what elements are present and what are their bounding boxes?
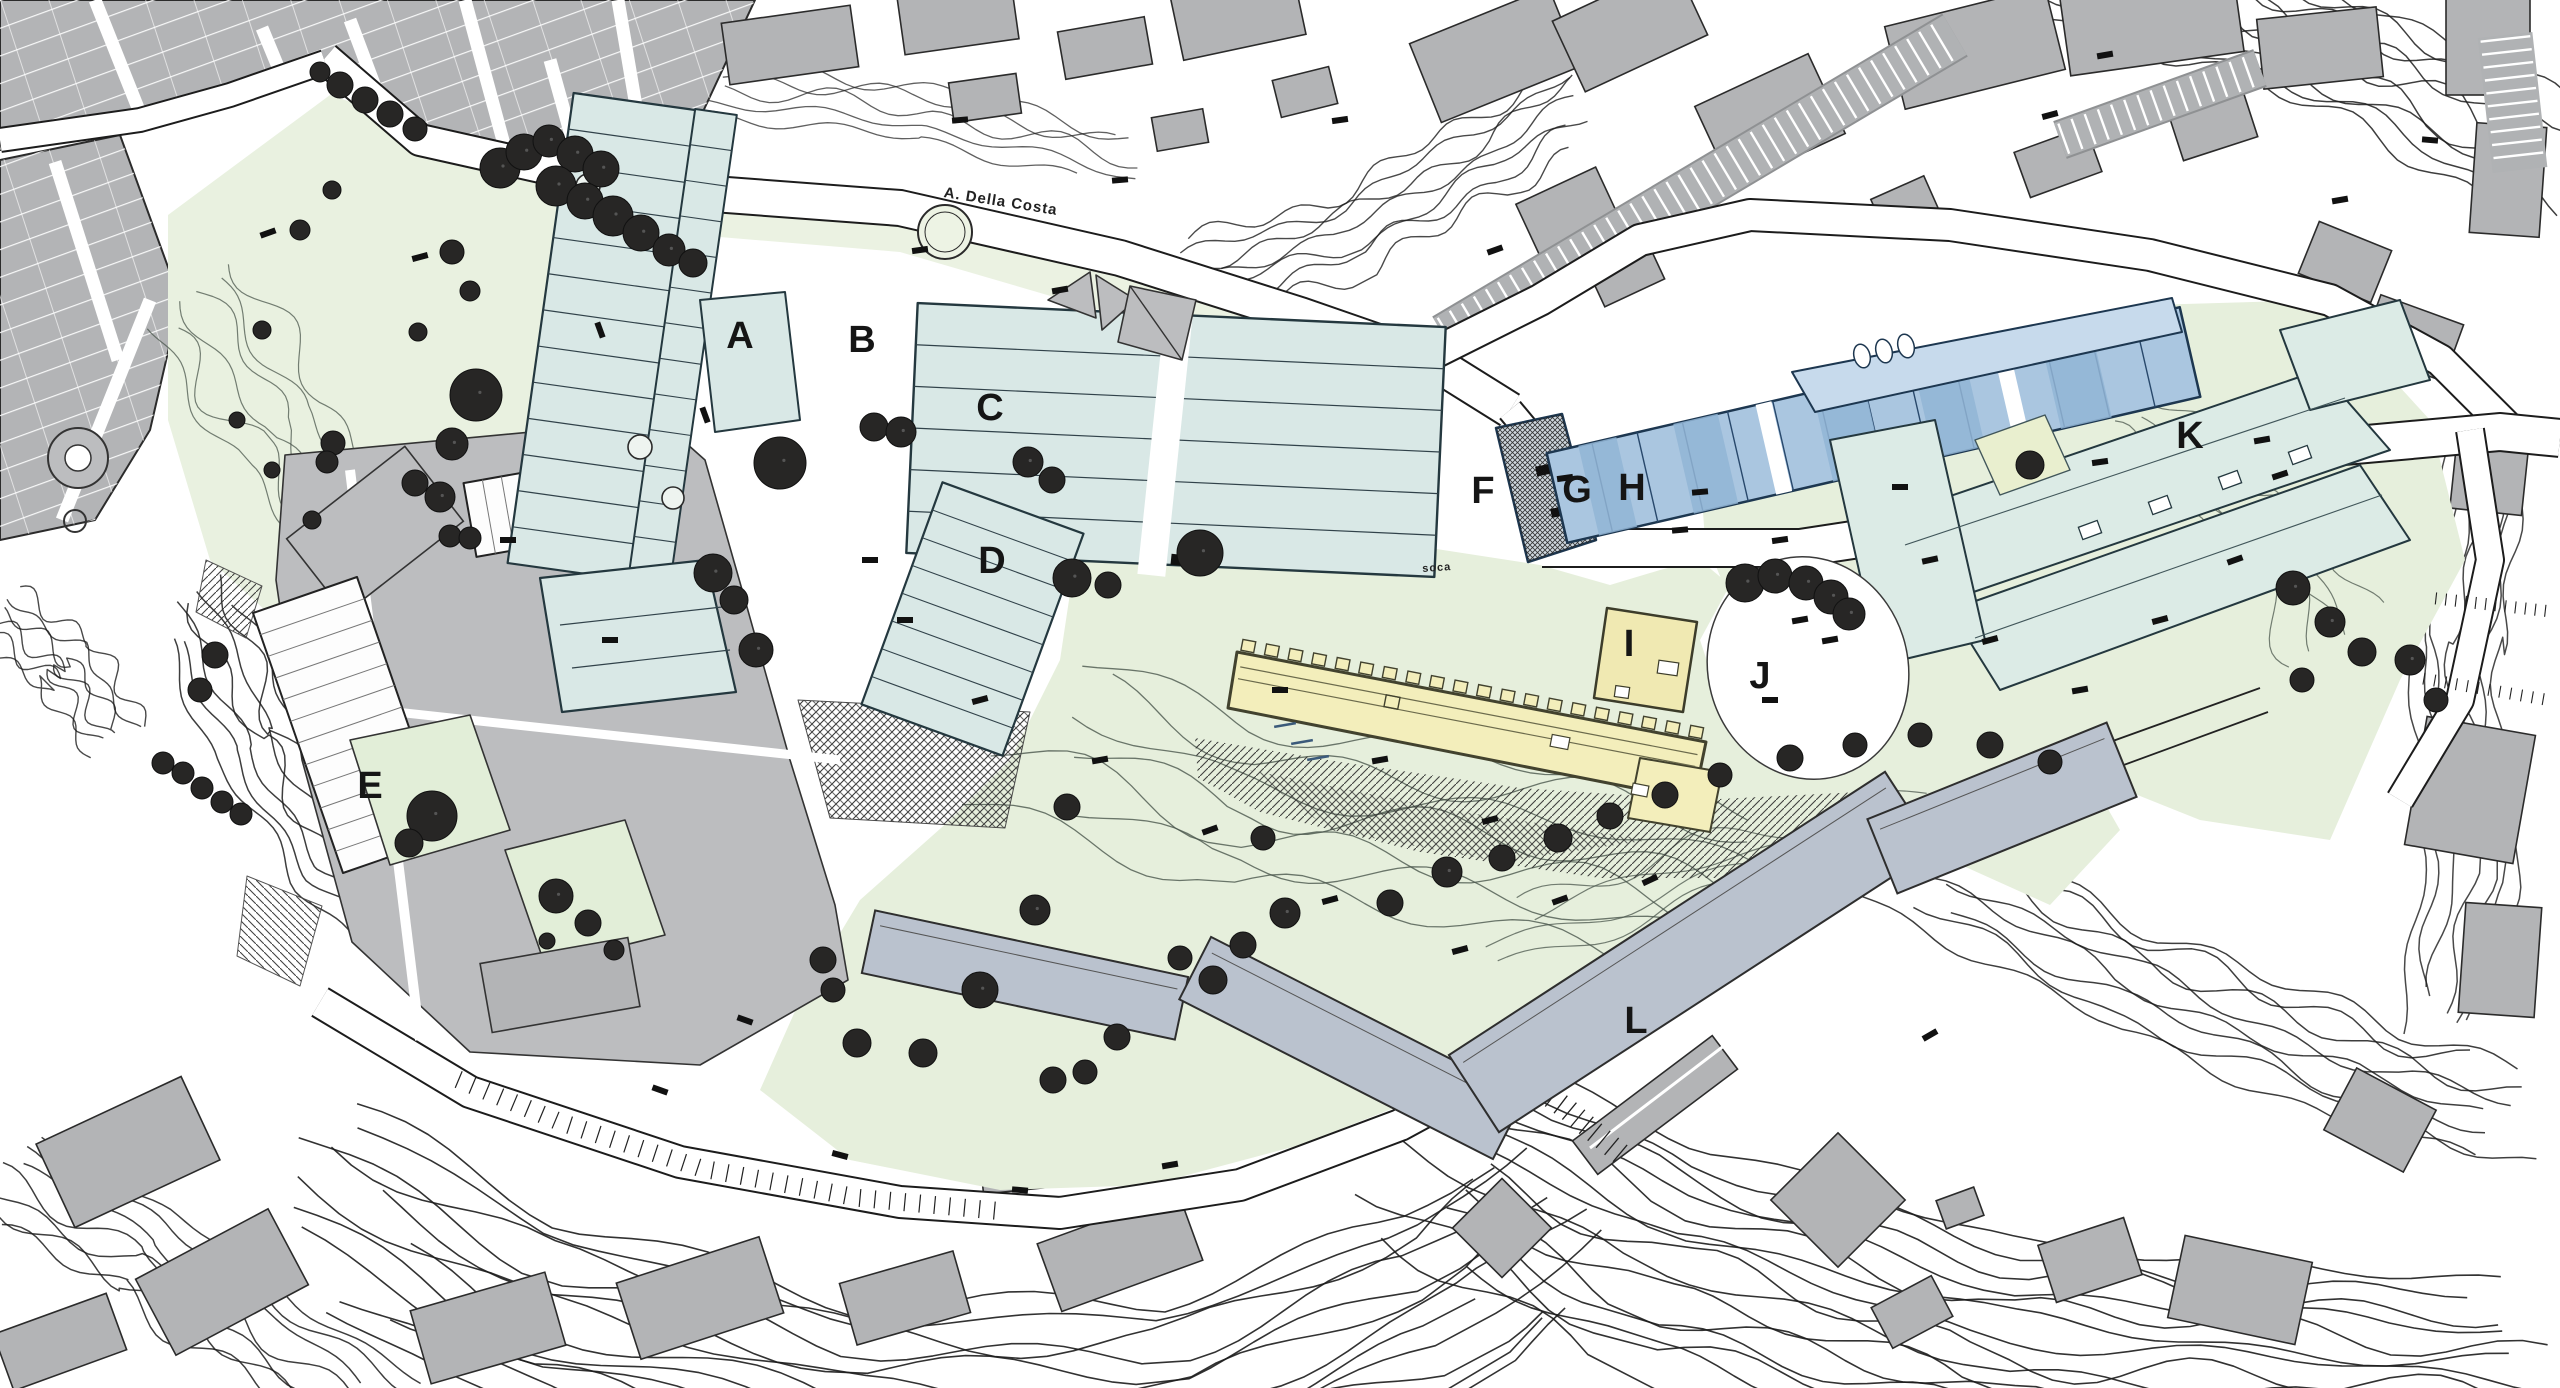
tree-icon xyxy=(886,417,916,447)
tree-icon xyxy=(2016,451,2044,479)
tree-icon xyxy=(2315,607,2345,637)
tree-icon xyxy=(1652,782,1678,808)
tree-icon xyxy=(1095,572,1121,598)
tree-icon xyxy=(459,527,481,549)
site-mark xyxy=(862,557,878,563)
tree-icon xyxy=(172,762,194,784)
tree-icon xyxy=(1708,763,1732,787)
site-mark xyxy=(2332,196,2349,205)
building-label-k: K xyxy=(2176,415,2204,457)
tree-icon xyxy=(810,947,836,973)
street-label-1: soca xyxy=(1422,561,1452,575)
tree-icon xyxy=(230,803,252,825)
tree-icon xyxy=(202,642,228,668)
building-label-f: F xyxy=(1471,470,1494,512)
tree-icon xyxy=(323,181,341,199)
tree-icon xyxy=(1040,1067,1066,1093)
tree-icon xyxy=(1251,826,1275,850)
tree-icon xyxy=(1833,598,1865,630)
tree-icon xyxy=(1270,898,1300,928)
building-label-c: C xyxy=(976,387,1003,429)
tree-icon xyxy=(2395,645,2425,675)
building-label-i: I xyxy=(1624,623,1635,665)
tree-icon xyxy=(2424,688,2448,712)
site-mark xyxy=(651,1084,668,1095)
tree-icon xyxy=(2290,668,2314,692)
tree-icon xyxy=(720,586,748,614)
tree-icon xyxy=(575,910,601,936)
site-mark xyxy=(699,406,710,423)
tree-icon xyxy=(316,451,338,473)
building-label-h: H xyxy=(1618,467,1645,509)
tree-icon xyxy=(403,117,427,141)
tree-icon xyxy=(460,281,480,301)
site-mark xyxy=(1112,176,1128,183)
building-label-g: G xyxy=(1562,469,1592,511)
tree-icon xyxy=(264,462,280,478)
tree-icon xyxy=(1377,890,1403,916)
tree-icon xyxy=(1597,803,1623,829)
tree-icon xyxy=(191,777,213,799)
tree-icon xyxy=(1013,447,1043,477)
tree-icon xyxy=(1230,932,1256,958)
tree-icon xyxy=(439,525,461,547)
tree-icon xyxy=(860,413,888,441)
tree-icon xyxy=(253,321,271,339)
site-mark xyxy=(602,637,618,643)
site-mark xyxy=(2041,110,2058,120)
tree-icon xyxy=(1104,1024,1130,1050)
building-label-l: L xyxy=(1624,1000,1647,1042)
tree-icon xyxy=(395,829,423,857)
tree-icon xyxy=(1758,559,1792,593)
tree-icon xyxy=(909,1039,937,1067)
tree-icon xyxy=(377,101,403,127)
tree-icon xyxy=(739,633,773,667)
tree-icon xyxy=(1544,824,1572,852)
tree-icon xyxy=(1168,946,1192,970)
tree-icon xyxy=(352,87,378,113)
tree-icon xyxy=(1908,723,1932,747)
tree-icon xyxy=(962,972,998,1008)
building-label-e: E xyxy=(357,765,382,807)
tree-icon xyxy=(211,791,233,813)
site-mark xyxy=(2422,136,2438,143)
tree-icon xyxy=(409,323,427,341)
tree-icon xyxy=(821,978,845,1002)
tree-icon xyxy=(583,151,619,187)
tree-icon xyxy=(290,220,310,240)
site-mark xyxy=(1486,244,1503,255)
tree-icon xyxy=(1053,559,1091,597)
site-mark xyxy=(897,617,913,623)
tree-icon xyxy=(1039,467,1065,493)
tree-icon xyxy=(188,678,212,702)
tree-icon xyxy=(440,240,464,264)
tree-icon xyxy=(694,554,732,592)
tree-icon xyxy=(843,1029,871,1057)
tree-icon xyxy=(1054,794,1080,820)
site-mark xyxy=(1332,116,1349,124)
tree-icon xyxy=(229,412,245,428)
tree-icon xyxy=(1977,732,2003,758)
tree-icon xyxy=(1777,745,1803,771)
tree-icon xyxy=(2348,638,2376,666)
tree-icon xyxy=(1073,1060,1097,1084)
building-label-b: B xyxy=(848,319,875,361)
tree-icon xyxy=(754,437,806,489)
tree-icon xyxy=(402,470,428,496)
tree-icon xyxy=(152,752,174,774)
tree-icon xyxy=(539,879,573,913)
tree-icon xyxy=(1020,895,1050,925)
tree-icon xyxy=(450,369,502,421)
tree-icon xyxy=(2038,750,2062,774)
site-plan-canvas: ABCDEFGHIJKLA. Della Costasoca xyxy=(0,0,2560,1388)
tree-icon xyxy=(327,72,353,98)
tree-icon xyxy=(1199,966,1227,994)
tree-icon xyxy=(1177,530,1223,576)
tree-icon xyxy=(604,940,624,960)
tree-icon xyxy=(303,511,321,529)
site-plan-page: ABCDEFGHIJKLA. Della Costasoca xyxy=(0,0,2560,1388)
tree-icon xyxy=(425,482,455,512)
site-mark xyxy=(1762,697,1778,703)
tree-icon xyxy=(436,428,468,460)
site-mark xyxy=(1272,687,1288,693)
tree-icon xyxy=(679,249,707,277)
building-label-d: D xyxy=(978,540,1005,582)
building-label-j: J xyxy=(1749,655,1770,697)
site-mark xyxy=(1922,1028,1939,1041)
tree-icon xyxy=(310,62,330,82)
tree-icon xyxy=(1843,733,1867,757)
tree-icon xyxy=(1726,564,1764,602)
tree-icon xyxy=(1489,845,1515,871)
tree-icon xyxy=(1432,857,1462,887)
site-mark xyxy=(1892,484,1908,490)
site-mark xyxy=(500,537,516,543)
tree-icon xyxy=(539,933,555,949)
building-label-a: A xyxy=(726,315,753,357)
tree-icon xyxy=(2276,571,2310,605)
